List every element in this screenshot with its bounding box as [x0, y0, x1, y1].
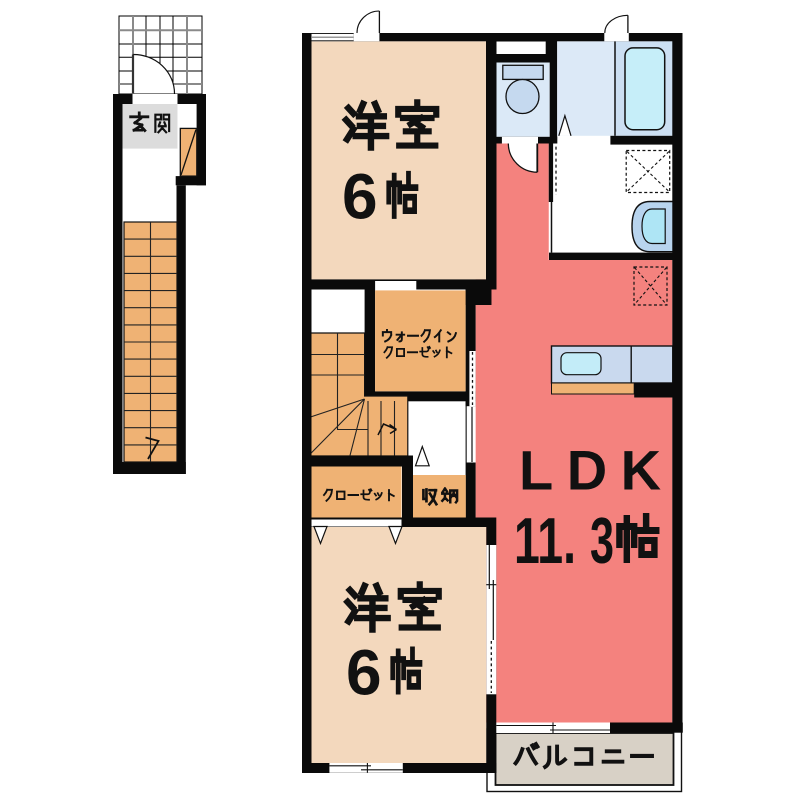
svg-text:LDK: LDK — [519, 439, 675, 502]
svg-text:6: 6 — [342, 161, 378, 233]
svg-text:11.: 11. — [514, 504, 576, 577]
svg-text:6: 6 — [346, 637, 382, 709]
svg-text:3: 3 — [590, 504, 614, 577]
